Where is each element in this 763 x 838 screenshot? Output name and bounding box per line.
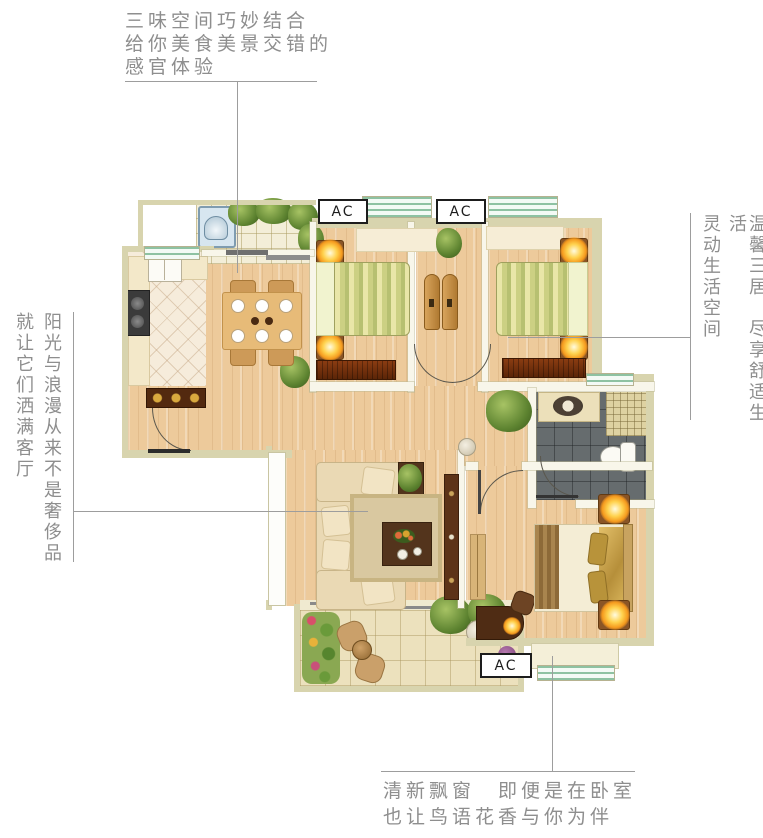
ac-label: AC bbox=[449, 204, 472, 220]
nook-plant bbox=[436, 228, 462, 258]
wall bbox=[466, 462, 478, 470]
annotation-left-inner-column: 阳光与浪漫从来不是奢侈品 bbox=[41, 312, 61, 582]
leader-line-bottom-horizontal bbox=[381, 771, 635, 772]
door-handle bbox=[447, 299, 452, 307]
dresser bbox=[316, 360, 396, 380]
sofa-cushion bbox=[321, 505, 352, 538]
door-handle bbox=[429, 299, 434, 307]
vanity bbox=[538, 392, 600, 422]
entry-door bbox=[148, 449, 190, 453]
ac-label: AC bbox=[494, 658, 517, 674]
dining-table bbox=[222, 292, 302, 350]
lamp bbox=[600, 494, 630, 524]
shower-area bbox=[606, 392, 646, 436]
wall bbox=[294, 604, 300, 692]
plate bbox=[279, 299, 293, 313]
bowl bbox=[265, 317, 273, 325]
bathroom-window bbox=[586, 373, 634, 386]
dresser bbox=[502, 358, 586, 378]
leader-line-left-horizontal bbox=[73, 511, 368, 512]
wardrobe-divider bbox=[477, 535, 478, 597]
annotation-bottom-line2: 也让鸟语花香与你为伴 bbox=[383, 804, 663, 830]
living-room-window bbox=[268, 452, 286, 606]
nightstand bbox=[598, 600, 630, 630]
desk-lamp bbox=[503, 617, 521, 635]
sink-divider bbox=[164, 257, 165, 280]
wall bbox=[138, 200, 143, 250]
plate bbox=[255, 299, 269, 313]
master-bed bbox=[534, 524, 632, 612]
wall bbox=[592, 218, 602, 382]
nightstand bbox=[598, 494, 630, 524]
pillow bbox=[587, 570, 609, 604]
lamp bbox=[600, 600, 630, 630]
sofa-cushion bbox=[321, 539, 352, 571]
ac-label-box: AC bbox=[436, 199, 486, 224]
annotation-right-outer-column: 温馨三居 尽享舒适生活 bbox=[726, 214, 763, 444]
floor-plan: AC AC AC bbox=[0, 0, 763, 838]
leader-line-left-vertical bbox=[73, 312, 74, 562]
sliding-door-track bbox=[266, 255, 310, 260]
hall-plant bbox=[486, 390, 532, 432]
plate bbox=[279, 329, 293, 343]
bed1-pillows bbox=[316, 262, 336, 336]
headboard bbox=[623, 524, 633, 612]
leader-line-top-vertical bbox=[237, 81, 238, 273]
ac-label: AC bbox=[331, 204, 354, 220]
annotation-top: 三味空间巧妙结合 给你美食美景交错的 感官体验 bbox=[125, 10, 365, 79]
bedroom1-window bbox=[362, 196, 432, 218]
pillow bbox=[587, 532, 609, 566]
annotation-bottom-line1: 清新飘窗 即便是在卧室 bbox=[383, 778, 663, 804]
cup bbox=[413, 547, 422, 556]
coffee-table bbox=[382, 522, 432, 566]
dining-floor bbox=[202, 250, 318, 456]
bed2-pillows bbox=[568, 262, 588, 336]
nightstand bbox=[316, 334, 344, 360]
flowers bbox=[393, 529, 415, 543]
annotation-top-line3: 感官体验 bbox=[125, 56, 365, 79]
ac-label-box: AC bbox=[318, 199, 368, 224]
bed2 bbox=[496, 262, 570, 336]
wall bbox=[646, 374, 654, 646]
lamp bbox=[316, 333, 344, 361]
cup bbox=[397, 549, 408, 560]
bed-fold bbox=[535, 525, 559, 609]
bedroom2-window bbox=[488, 196, 558, 218]
bed1 bbox=[334, 262, 410, 336]
annotation-right-inner-column: 灵动生活空间 bbox=[700, 214, 720, 354]
bay-window-sill bbox=[356, 228, 438, 252]
annotation-left-outer-column: 就让它们洒满客厅 bbox=[13, 312, 33, 512]
lamp bbox=[560, 237, 588, 265]
bowl bbox=[251, 317, 259, 325]
burner bbox=[131, 315, 144, 328]
master-bay-window bbox=[537, 665, 615, 681]
stove bbox=[126, 290, 150, 336]
balcony-table bbox=[352, 640, 372, 660]
nightstand bbox=[560, 238, 588, 264]
floorplan-page: AC AC AC 三味空间巧妙结合 给你美食美景交错的 感官体验 阳光与浪漫从来… bbox=[0, 0, 763, 838]
annotation-top-line1: 三味空间巧妙结合 bbox=[125, 10, 365, 33]
plate bbox=[231, 329, 245, 343]
bathroom-door bbox=[536, 495, 578, 498]
plate bbox=[255, 329, 269, 343]
leader-line-bottom-vertical bbox=[552, 656, 553, 771]
flower-bed bbox=[302, 612, 340, 684]
tv-console bbox=[444, 474, 459, 600]
wall bbox=[294, 686, 524, 692]
plate bbox=[231, 299, 245, 313]
ac-label-box: AC bbox=[480, 653, 532, 678]
closet-door-panel bbox=[424, 274, 440, 330]
dining-chair bbox=[230, 348, 256, 366]
annotation-top-line2: 给你美食美景交错的 bbox=[125, 33, 365, 56]
master-door bbox=[478, 470, 481, 514]
wall bbox=[122, 246, 128, 458]
leader-line-top-horizontal bbox=[125, 81, 317, 82]
corner-plant bbox=[398, 464, 422, 492]
bay-window-sill bbox=[486, 226, 564, 250]
sliding-door-track bbox=[226, 250, 268, 255]
annotation-bottom: 清新飘窗 即便是在卧室 也让鸟语花香与你为伴 bbox=[383, 778, 663, 830]
wall bbox=[138, 200, 316, 205]
burner bbox=[131, 297, 144, 310]
wardrobe bbox=[470, 534, 486, 600]
leader-line-right-horizontal bbox=[508, 337, 690, 338]
shoe-cabinet bbox=[146, 388, 206, 408]
leader-line-right-vertical bbox=[690, 213, 691, 420]
kitchen-window bbox=[144, 246, 200, 260]
wall bbox=[310, 382, 414, 391]
closet-door-panel bbox=[442, 274, 458, 330]
dining-chair bbox=[268, 348, 294, 366]
basin bbox=[553, 396, 583, 416]
washer-door bbox=[204, 216, 228, 240]
hall-pot bbox=[458, 438, 476, 456]
